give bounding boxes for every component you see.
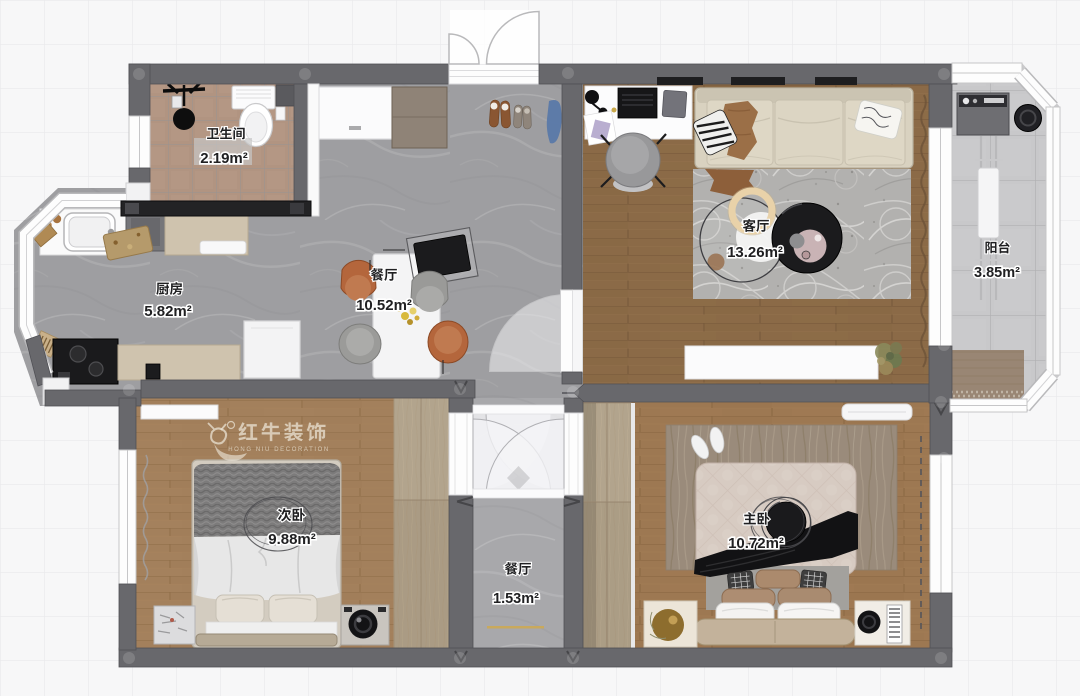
svg-text:10.72m²: 10.72m²	[728, 535, 784, 552]
svg-text:10.52m²: 10.52m²	[356, 297, 412, 314]
svg-text:13.26m²: 13.26m²	[727, 244, 783, 261]
svg-text:3.85m²: 3.85m²	[974, 265, 1020, 281]
svg-text:HONG NIU DECORATION: HONG NIU DECORATION	[228, 447, 330, 453]
svg-text:5.82m²: 5.82m²	[144, 303, 192, 320]
svg-text:9.88m²: 9.88m²	[268, 531, 316, 548]
svg-text:1.53m²: 1.53m²	[493, 591, 539, 607]
svg-text:2.19m²: 2.19m²	[200, 150, 248, 167]
